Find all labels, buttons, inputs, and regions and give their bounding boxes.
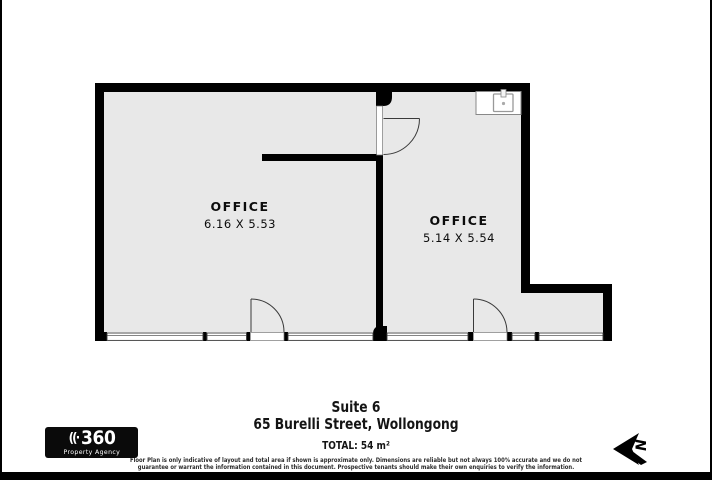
disclaimer-line-2: guarantee or warrant the information con… [43,464,670,471]
room-label-office-left: OFFICE 6.16 X 5.53 [140,199,340,231]
room-label-office-right: OFFICE 5.14 X 5.54 [359,213,559,245]
suite-title: Suite 6 [64,399,648,416]
street-address: 65 Burelli Street, Wollongong [64,416,648,433]
sink-icon [476,90,521,115]
agency-logo: ((· 360 Property Agency [45,427,138,458]
disclaimer-text: Floor Plan is only indicative of layout … [0,457,712,471]
logo-number: 360 [81,429,115,448]
total-area: TOTAL: 54 m² [64,439,648,452]
floorplan-page: N OFFICE 6.16 X 5.53 OFFICE 5.14 X 5.54 … [0,0,712,480]
room-name: OFFICE [140,199,340,214]
room-dimensions: 6.16 X 5.53 [140,217,340,231]
disclaimer-line-1: Floor Plan is only indicative of layout … [43,457,670,464]
room-name: OFFICE [359,213,559,228]
logo-subtitle: Property Agency [63,449,120,456]
windows [107,333,603,340]
room-dimensions: 5.14 X 5.54 [359,231,559,245]
logo-arcs-icon: ((· [68,432,78,445]
